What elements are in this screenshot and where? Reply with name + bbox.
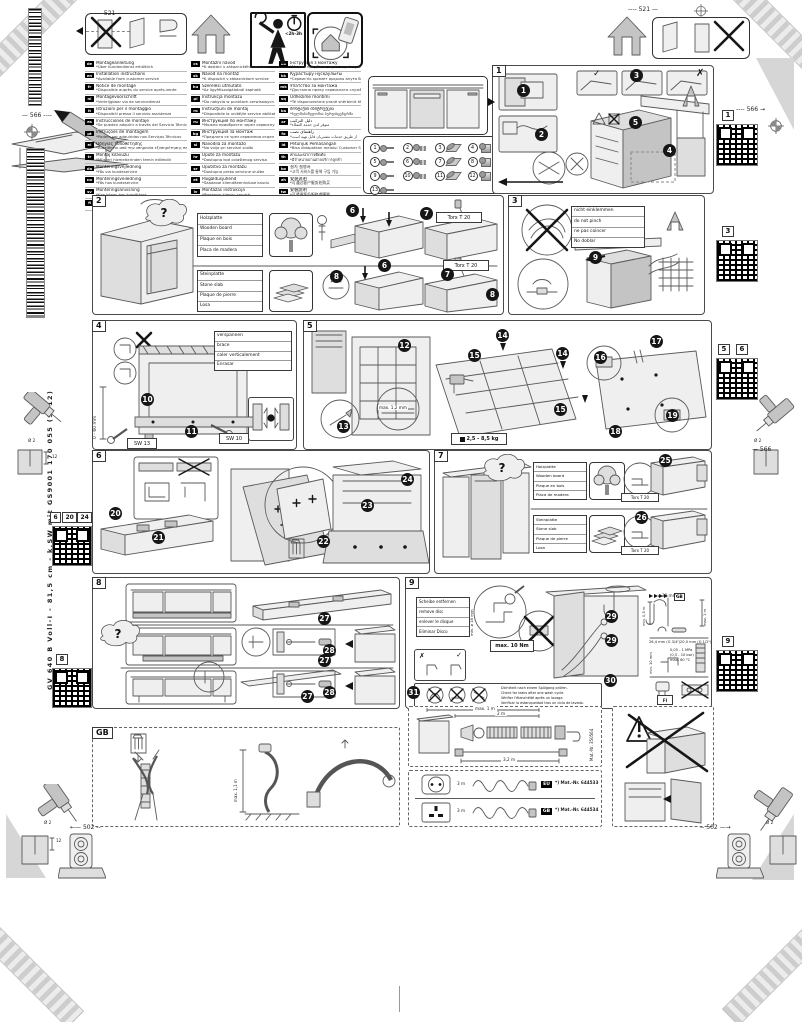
language-entry: fr Notice de montage*Disponible auprès d…: [85, 83, 187, 95]
drill-icon: [10, 392, 70, 440]
language-entry: fa راهنمای نصب*از طریق خدمات مشتریان قاب…: [279, 130, 361, 142]
step-27c: 27: [301, 690, 314, 703]
language-code-tag: sl: [191, 142, 200, 148]
crosshair-icon: [24, 124, 40, 140]
carry-warning-box: [612, 706, 714, 827]
panel-4-tag: 4: [92, 320, 106, 332]
qr-tag-6: 6: [50, 512, 61, 523]
installer-time-badge: <2h-3h: [250, 12, 306, 68]
language-code-tag: da: [85, 166, 94, 172]
language-text: Instrucciones de montaje*Se pueden adqui…: [96, 119, 187, 128]
language-list-column-1: de Montageanleitung*Über Kundendienst er…: [85, 60, 187, 211]
language-entry: no Monteringsveiledning*Fås hos kundeser…: [85, 176, 187, 188]
arrow-right-icon: [488, 98, 495, 106]
pilot-hole-sketch: [20, 830, 56, 868]
qr-tag-1: 1: [722, 110, 734, 121]
dim-566-right: ---- 566 →: [736, 106, 765, 113]
panel-gb-drain-hose: GB max. 1,1 m: [92, 727, 400, 827]
step-23: 23: [361, 499, 374, 512]
step-29: 29: [605, 610, 618, 623]
part-icon: [383, 189, 394, 191]
qr-tag-9: 9: [722, 636, 734, 647]
language-entry: sr Uputstvo za montažu*Dostupno preko se…: [191, 164, 275, 176]
part-icon: [445, 144, 461, 152]
cabinet-row-preview: [368, 76, 488, 135]
language-entry: ko 설치 설명서*고객 서비스를 통해 구입 가능: [279, 164, 361, 176]
label-line: Placa de madera: [198, 246, 262, 256]
qr-code-step9: [716, 650, 758, 692]
thread-g12: 20,0 mm (G 1/2"): [680, 640, 711, 644]
language-text: Návod na montáž*K dispozícii v zákazníck…: [202, 72, 269, 81]
label-line: Placa de madera: [534, 491, 586, 499]
panel-1-overview: 1 1 2 3 4 5 ✓ ✗: [492, 65, 714, 194]
language-text: Montageanleitung*Über Kundendienst erhäl…: [96, 61, 153, 70]
label-line: Steinplatte: [198, 271, 262, 281]
panel-5-tag: 5: [303, 320, 317, 332]
hinge-bracket-sketch: [58, 832, 106, 882]
drill-icon: [740, 392, 800, 440]
push-in-arrow-icon: [190, 13, 232, 55]
label-line: Scheibe entfernen: [417, 598, 469, 608]
language-text: دليل التركيب*متوفر لدى خدمة العملاء: [290, 119, 329, 128]
step-4: 4: [663, 144, 676, 157]
language-text: Upute za montažu*Dostupno kod ovlaštenog…: [202, 153, 267, 162]
torx-label: Torx T 20: [621, 493, 659, 502]
qr-tag-20: 20: [62, 512, 77, 523]
spine-barcode: [26, 148, 45, 318]
language-list-column-2: cs Montážní návod*K dostání u zákaznické…: [191, 60, 275, 211]
range-0-60mm: 0 - 60 mm: [93, 387, 98, 439]
step-17: 17: [650, 335, 663, 348]
drill-diameter: Ø 2: [44, 820, 51, 825]
step-25: 25: [659, 454, 672, 467]
hinge-bracket-sketch: [716, 832, 764, 882]
fi-breaker-label: FI: [657, 695, 673, 705]
step-7: 7: [420, 207, 433, 220]
question-mark: ?: [479, 454, 525, 482]
language-text: Инструкция за монтаж*Предлага се чрез се…: [202, 130, 274, 139]
language-entry: hr Upute za montažu*Dostupno kod ovlašte…: [191, 153, 275, 165]
panel-3-hose-pinch-warning: 3 nicht einklemmendo not pinchne pas coi…: [508, 195, 705, 315]
language-text: Monteringsvejledning*Fås via kundeservic…: [96, 165, 141, 174]
drill-diameter: Ø 2: [28, 438, 35, 443]
panel-9-tag: 9: [405, 577, 419, 589]
language-code-tag: ru: [191, 119, 200, 125]
language-text: Monteringsveiledning*Fås hos kundeservic…: [96, 177, 141, 186]
qr-code-step8: [52, 668, 92, 708]
ext-material-number: Mat.-Nr. 350564: [589, 715, 594, 761]
panel-9-water-connection: 9: [405, 577, 712, 709]
qr-code-step3: [716, 240, 758, 282]
language-entry: it Istruzioni per il montaggio*Disponibi…: [85, 106, 187, 118]
language-text: راهنمای نصب*از طریق خدمات مشتریان قابل ت…: [290, 130, 357, 139]
language-code-tag: sr: [191, 166, 200, 172]
step-19: 19: [666, 409, 679, 422]
language-code-tag: sq: [279, 96, 288, 102]
dim-502-left: ←— 502 --: [70, 824, 101, 831]
qr-code-step1: [716, 124, 758, 166]
language-entry: sl Navodila za montažo*Na voljo pri serv…: [191, 141, 275, 153]
drill-diameter: Ø 2: [766, 820, 773, 825]
label-line: nicht einklemmen: [572, 207, 644, 217]
dim-566-left: — 566 ----: [22, 112, 52, 119]
step-11: 11: [185, 425, 198, 438]
step-12: 12: [398, 339, 411, 352]
cord-length: 3 m: [457, 781, 465, 786]
panel-6-door-attachment: 6 20 21 22 23 24: [92, 450, 430, 574]
ext-max-length: max. 1 m: [473, 706, 497, 711]
question-cloud: ?: [479, 454, 525, 482]
bricks-icon: [589, 515, 625, 553]
part-item: 11: [435, 170, 462, 183]
panel-6-tag: 6: [92, 450, 106, 462]
install-time-label: <2h-3h: [284, 31, 303, 36]
label-line: Plaque en bois: [534, 482, 586, 491]
language-entry: nl Montagevoorschrift*Verkrijgbaar via d…: [85, 95, 187, 107]
language-entry: tr Montaj kılavuzu*Müşteri hizmetlerinde…: [85, 153, 187, 165]
part-icon: [416, 174, 427, 179]
panel-material-warning-box: [85, 13, 187, 55]
uk-socket-icon: [421, 802, 451, 823]
label-line: Plaque en bois: [198, 236, 262, 247]
language-code-tag: no: [85, 177, 94, 183]
drill-diameter: Ø 2: [754, 438, 761, 443]
language-entry: bg Инструкция за монтаж*Предлага се чрез…: [191, 130, 275, 142]
part-icon: [481, 144, 492, 153]
step-15: 15: [468, 349, 481, 362]
crosshair-icon: [768, 118, 784, 134]
torque-label: max. 10 Nm: [490, 640, 534, 652]
part-item: 8: [468, 156, 495, 169]
language-entry: es Instrucciones de montaje*Se pueden ad…: [85, 118, 187, 130]
door-weight-label: 2,5 - 8,5 kg: [451, 433, 507, 445]
language-entry: ro Instrucţiuni de montaj*Disponibile la…: [191, 106, 275, 118]
drill-cluster-right: Ø 2: [730, 392, 802, 482]
language-text: Udhëzime montimi*Të disponueshme pranë s…: [290, 95, 361, 104]
language-text: Uputstvo za montažu*Dostupno preko servi…: [202, 165, 264, 174]
label-line: brace: [215, 342, 291, 352]
parts-list: 1 2 3 4 5 6 7 8: [370, 141, 494, 189]
language-text: 설치 설명서*고객 서비스를 통해 구입 가능: [290, 165, 339, 174]
language-entry: id Petunjuk Pemasangan*Bisa didapatkan m…: [279, 141, 361, 153]
door-balance-pictogram: [248, 397, 294, 441]
part-icon: [445, 172, 461, 180]
part-number: 2: [403, 143, 413, 153]
step-28: 28: [323, 644, 336, 657]
step-13: 13: [337, 420, 350, 433]
panel-8-tag: 8: [92, 577, 106, 589]
step-14b: 14: [556, 347, 569, 360]
label-line: Enrasar: [215, 361, 291, 370]
part-icon: [481, 158, 492, 167]
sw10-label: SW 10: [219, 433, 249, 444]
language-code-tag: es: [85, 119, 94, 125]
language-code-tag: sv: [85, 189, 94, 195]
question-cloud: ?: [141, 199, 187, 227]
brace-label-box: verspannenbracecaler verticalementEnrasa…: [214, 331, 292, 371]
dim-521-left: — 521 ----: [96, 10, 126, 17]
corner-ribbon-bottom-left: [0, 919, 83, 1022]
language-entry: sk Návod na montáž*K dispozícii v zákazn…: [191, 72, 275, 84]
part-number: 9: [370, 171, 380, 181]
label-line: do not pinch: [572, 217, 644, 227]
language-code-tag: bg: [191, 131, 200, 137]
part-item: 7: [435, 156, 462, 169]
language-code-tag: pt: [85, 131, 94, 137]
panel-7-tag: 7: [434, 450, 448, 462]
label-line: ne pas coincer: [572, 228, 644, 238]
language-text: Petunjuk Pemasangan*Bisa didapatkan mela…: [290, 142, 361, 151]
panel-2-worktop-fixing: 2 ? HolzplatteWooden boar: [92, 195, 504, 315]
cord-mat-number: *) Mat.-Nr. 644533: [555, 780, 598, 785]
part-icon: [481, 172, 492, 181]
qr-tag-3: 3: [722, 226, 734, 237]
panel-1-tag: 1: [492, 65, 506, 77]
cord-length: 3 m: [457, 808, 465, 813]
label-line: caler verticalement: [215, 352, 291, 362]
language-text: Инструкция по монтажу*Можно приобрести ч…: [202, 119, 275, 128]
dim-502-right: -- 502 —→: [700, 824, 731, 831]
language-text: Упатство за монтажа*Достапно преку серви…: [290, 84, 361, 93]
corner-ribbon-top-left: [0, 0, 85, 83]
language-text: Paigaldusjuhend*Saadaval klienditeenindu…: [202, 177, 269, 186]
label-line: Losa: [198, 302, 262, 311]
language-text: Құрастыру нұсқаулығы*Сервистік қызмет ар…: [290, 72, 361, 81]
language-code-tag: cs: [191, 61, 200, 67]
language-code-tag: hu: [191, 84, 200, 90]
language-code-tag: it: [85, 108, 94, 114]
check-mark: ✓: [456, 651, 462, 659]
language-text: Montaj kılavuzu*Müşteri hizmetlerinden t…: [96, 153, 171, 162]
language-entry: pt Instruções de montagem*Podem ser adqu…: [85, 130, 187, 142]
cross-mark: ✗: [696, 68, 704, 79]
edge-ruler-strip: [28, 8, 42, 106]
qr-tag-24: 24: [77, 512, 92, 523]
label-line: Holzplatte: [198, 214, 262, 225]
language-entry: et Paigaldusjuhend*Saadaval klienditeeni…: [191, 176, 275, 188]
push-in-arrow-icon: [606, 15, 648, 57]
step-8b: 8: [486, 288, 499, 301]
step-20: 20: [109, 507, 122, 520]
cord-coil-icon: [471, 804, 537, 820]
language-text: Notice de montage*Disponible auprès du s…: [96, 84, 177, 93]
language-entry: zh 安装说明*可通过客户服务处购买: [279, 176, 361, 188]
step-9: 9: [589, 251, 602, 264]
drain-max-height: max. 1 m: [703, 600, 707, 626]
tap-type-box: ✗ ✓: [414, 649, 466, 681]
language-code-tag: sk: [191, 73, 200, 79]
language-text: Navodila za montažo*Na voljo pri servisn…: [202, 142, 253, 151]
drill-cluster-left: Ø 2 12: [10, 392, 90, 482]
sw13-label: SW 13: [127, 438, 157, 449]
cord-mat-number: *) Mat.-Nr. 644534: [555, 807, 598, 812]
eu-socket-icon: [421, 774, 451, 795]
question-mark: ?: [141, 199, 187, 227]
language-code-tag: fr: [85, 84, 94, 90]
part-icon: [445, 158, 461, 166]
tree-icon: [269, 213, 313, 257]
step-30: 30: [604, 674, 617, 687]
language-entry: th คำแนะนำการติดตั้ง*มีจำหน่ายผ่านฝ่ายบร…: [279, 153, 361, 165]
cord-row-gb: 3 m GB *) Mat.-Nr. 644534: [409, 798, 601, 825]
language-entry: de Montageanleitung*Über Kundendienst er…: [85, 60, 187, 72]
tree-icon: [589, 462, 625, 500]
panel-4-levelling-bracing: 4 verspannenbracecaler verticalementEnra…: [92, 320, 297, 450]
language-text: Instruções de montagem*Podem ser adquiri…: [96, 130, 181, 139]
language-code-tag: ro: [191, 108, 200, 114]
language-text: Instrucţiuni de montaj*Disponibile la un…: [202, 107, 275, 116]
part-item: 3: [435, 142, 462, 155]
part-item: 6: [403, 156, 430, 169]
part-icon: [383, 161, 394, 163]
check-mark: ✓: [593, 69, 601, 79]
language-code-tag: ko: [279, 166, 288, 172]
arrow-left-icon: [76, 27, 83, 35]
language-code-tag: th: [279, 154, 288, 160]
label-line: Eliminar Disco: [417, 627, 469, 636]
step-26: 26: [635, 511, 648, 524]
language-entry: hu Szerelési útmutató*Az ügyfélszolgálat…: [191, 83, 275, 95]
drain-hose-diameter: ø 38 mm: [658, 593, 677, 598]
hardware-parts-box: 1 2 3 4 5 6 7 8: [363, 136, 499, 194]
dim-521-right: ---- 521 —: [628, 6, 658, 13]
panel-2-tag: 2: [92, 195, 106, 207]
water-pressure-bar: (0,5 - 10 bar): [670, 653, 694, 657]
gb-hose-max-length: max. 1,1 m: [233, 762, 238, 802]
label-line: Wooden board: [534, 472, 586, 481]
part-icon: [383, 147, 394, 149]
power-cord-box: 3 m EU *) Mat.-Nr. 644533 3 m GB *) Mat.…: [408, 770, 602, 827]
language-text: Istruzioni per il montaggio*Disponibili …: [96, 107, 171, 116]
part-item: 9: [370, 170, 397, 183]
language-code-tag: tr: [85, 154, 94, 160]
language-code-tag: en: [85, 73, 94, 79]
step-27: 27: [318, 612, 331, 625]
part-number: 10: [403, 171, 413, 181]
label-line: No doblar: [572, 238, 644, 247]
step-3: 3: [630, 69, 643, 82]
part-number: 4: [468, 143, 478, 153]
language-text: მონტაჟის ინსტრუქცია*ხელმისაწვდომია სერვი…: [290, 107, 353, 116]
step-22: 22: [317, 535, 330, 548]
step-1: 1: [517, 84, 530, 97]
panel-gb-tag: GB: [92, 727, 113, 739]
panel-5-door-panel-mounting: 5 12 13 14 14 15 15 16 17 18 19 ma: [303, 320, 712, 450]
min-clearance: min. 10 mm: [649, 652, 653, 674]
language-code-tag: zh: [279, 177, 288, 183]
ext-total-length: 3,2 m: [501, 757, 517, 762]
panel-7-worktop-types: 7 ? HolzplatteWooden boardPlaque en boi: [434, 450, 712, 574]
step-7b: 7: [441, 268, 454, 281]
language-code-tag: nl: [85, 96, 94, 102]
part-number: 3: [435, 143, 445, 153]
part-item: 5: [370, 156, 397, 169]
ext-2m-length: 2 m: [495, 711, 507, 716]
part-number: 11: [435, 171, 445, 181]
step-6: 6: [346, 204, 359, 217]
remove-disc-label-box: Scheibe entfernenremove discenlever le d…: [416, 597, 470, 637]
panel-3-tag: 3: [508, 195, 522, 207]
language-entry: ar دليل التركيب*متوفر لدى خدمة العملاء: [279, 118, 361, 130]
question-mark: ?: [96, 620, 140, 647]
dim-566-right-lower: — 566: [752, 446, 771, 453]
step-24: 24: [401, 473, 414, 486]
label-line: Holzplatte: [534, 463, 586, 472]
cord-region-tag: GB: [541, 808, 552, 815]
panel-material-warning-box: [652, 17, 750, 59]
part-item: 10: [403, 170, 430, 183]
language-entry: mk Упатство за монтажа*Достапно преку се…: [279, 83, 361, 95]
wood-label-box: HolzplatteWooden boardPlaque en boisPlac…: [197, 213, 263, 257]
part-item: 1: [370, 142, 397, 155]
language-text: Instrukcja montażu*Do nabycia w punktach…: [202, 95, 274, 104]
step-31: 31: [407, 686, 420, 699]
part-number: 13: [370, 185, 380, 195]
language-entry: sq Udhëzime montimi*Të disponueshme pran…: [279, 95, 361, 107]
torx-label: Torx T 20: [436, 212, 482, 223]
label-line: Steinplatte: [534, 516, 586, 525]
drain-min-height: min. 0,5 m: [642, 602, 646, 626]
pilot-hole-sketch: [16, 446, 50, 478]
language-code-tag: kk: [279, 73, 288, 79]
part-number: 6: [403, 157, 413, 167]
water-temp-max: max. 60 °C: [670, 658, 690, 662]
gap-max-label: max. 1,2 mm: [378, 405, 408, 410]
panel-8-plinth-variants: 8: [92, 577, 400, 709]
language-code-tag: lv: [191, 189, 200, 195]
language-code-tag: ar: [279, 119, 288, 125]
crosshair-icon: [694, 4, 708, 18]
part-number: 12: [468, 171, 478, 181]
drain-extension-box: max. 1 m 2 m 3,2 m Mat.-Nr. 350564: [408, 706, 602, 767]
cord-coil-icon: [471, 777, 537, 793]
question-cloud: ?: [96, 620, 140, 647]
step-14: 14: [496, 329, 509, 342]
part-icon: [383, 175, 394, 177]
step-5: 5: [629, 116, 642, 129]
step-2: 2: [535, 128, 548, 141]
language-entry: ka მონტაჟის ინსტრუქცია*ხელმისაწვდომია სე…: [279, 106, 361, 118]
language-entry: kk Құрастыру нұсқаулығы*Сервистік қызмет…: [279, 72, 361, 84]
hole-depth: 12: [52, 454, 57, 459]
language-entry: pl Instrukcja montażu*Do nabycia w punkt…: [191, 95, 275, 107]
language-text: Szerelési útmutató*Az ügyfélszolgálatnál…: [202, 84, 261, 93]
scan-app-badge: [307, 12, 363, 68]
step-21: 21: [152, 531, 165, 544]
step-29b: 29: [605, 634, 618, 647]
language-text: 安装说明*可通过客户服务处购买: [290, 177, 330, 186]
wood-label-box: HolzplatteWooden boardPlaque en boisPlac…: [533, 462, 587, 500]
label-line: Plaque de pierre: [534, 535, 586, 544]
label-line: Stone slab: [534, 525, 586, 534]
language-code-tag: ka: [279, 108, 288, 114]
cord-row-eu: 3 m EU *) Mat.-Nr. 644533: [409, 771, 601, 798]
language-code-tag: de: [85, 61, 94, 67]
language-code-tag: mk: [279, 84, 288, 90]
language-list-column-3: uk Інструкція з монтажу*Можна придбати ч…: [279, 60, 361, 199]
label-line: enlever le disque: [417, 618, 469, 628]
step-15b: 15: [554, 403, 567, 416]
part-icon: [416, 160, 427, 165]
language-text: Montagevoorschrift*Verkrijgbaar via de s…: [96, 95, 160, 104]
part-number: 1: [370, 143, 380, 153]
qr-tag-6: 6: [736, 344, 748, 355]
thread-g34: 26,4 mm (G 3/4"): [649, 640, 680, 644]
language-code-tag: et: [191, 177, 200, 183]
row-divider: [415, 798, 595, 799]
language-code-tag: fa: [279, 131, 288, 137]
part-item: 12: [468, 170, 495, 183]
